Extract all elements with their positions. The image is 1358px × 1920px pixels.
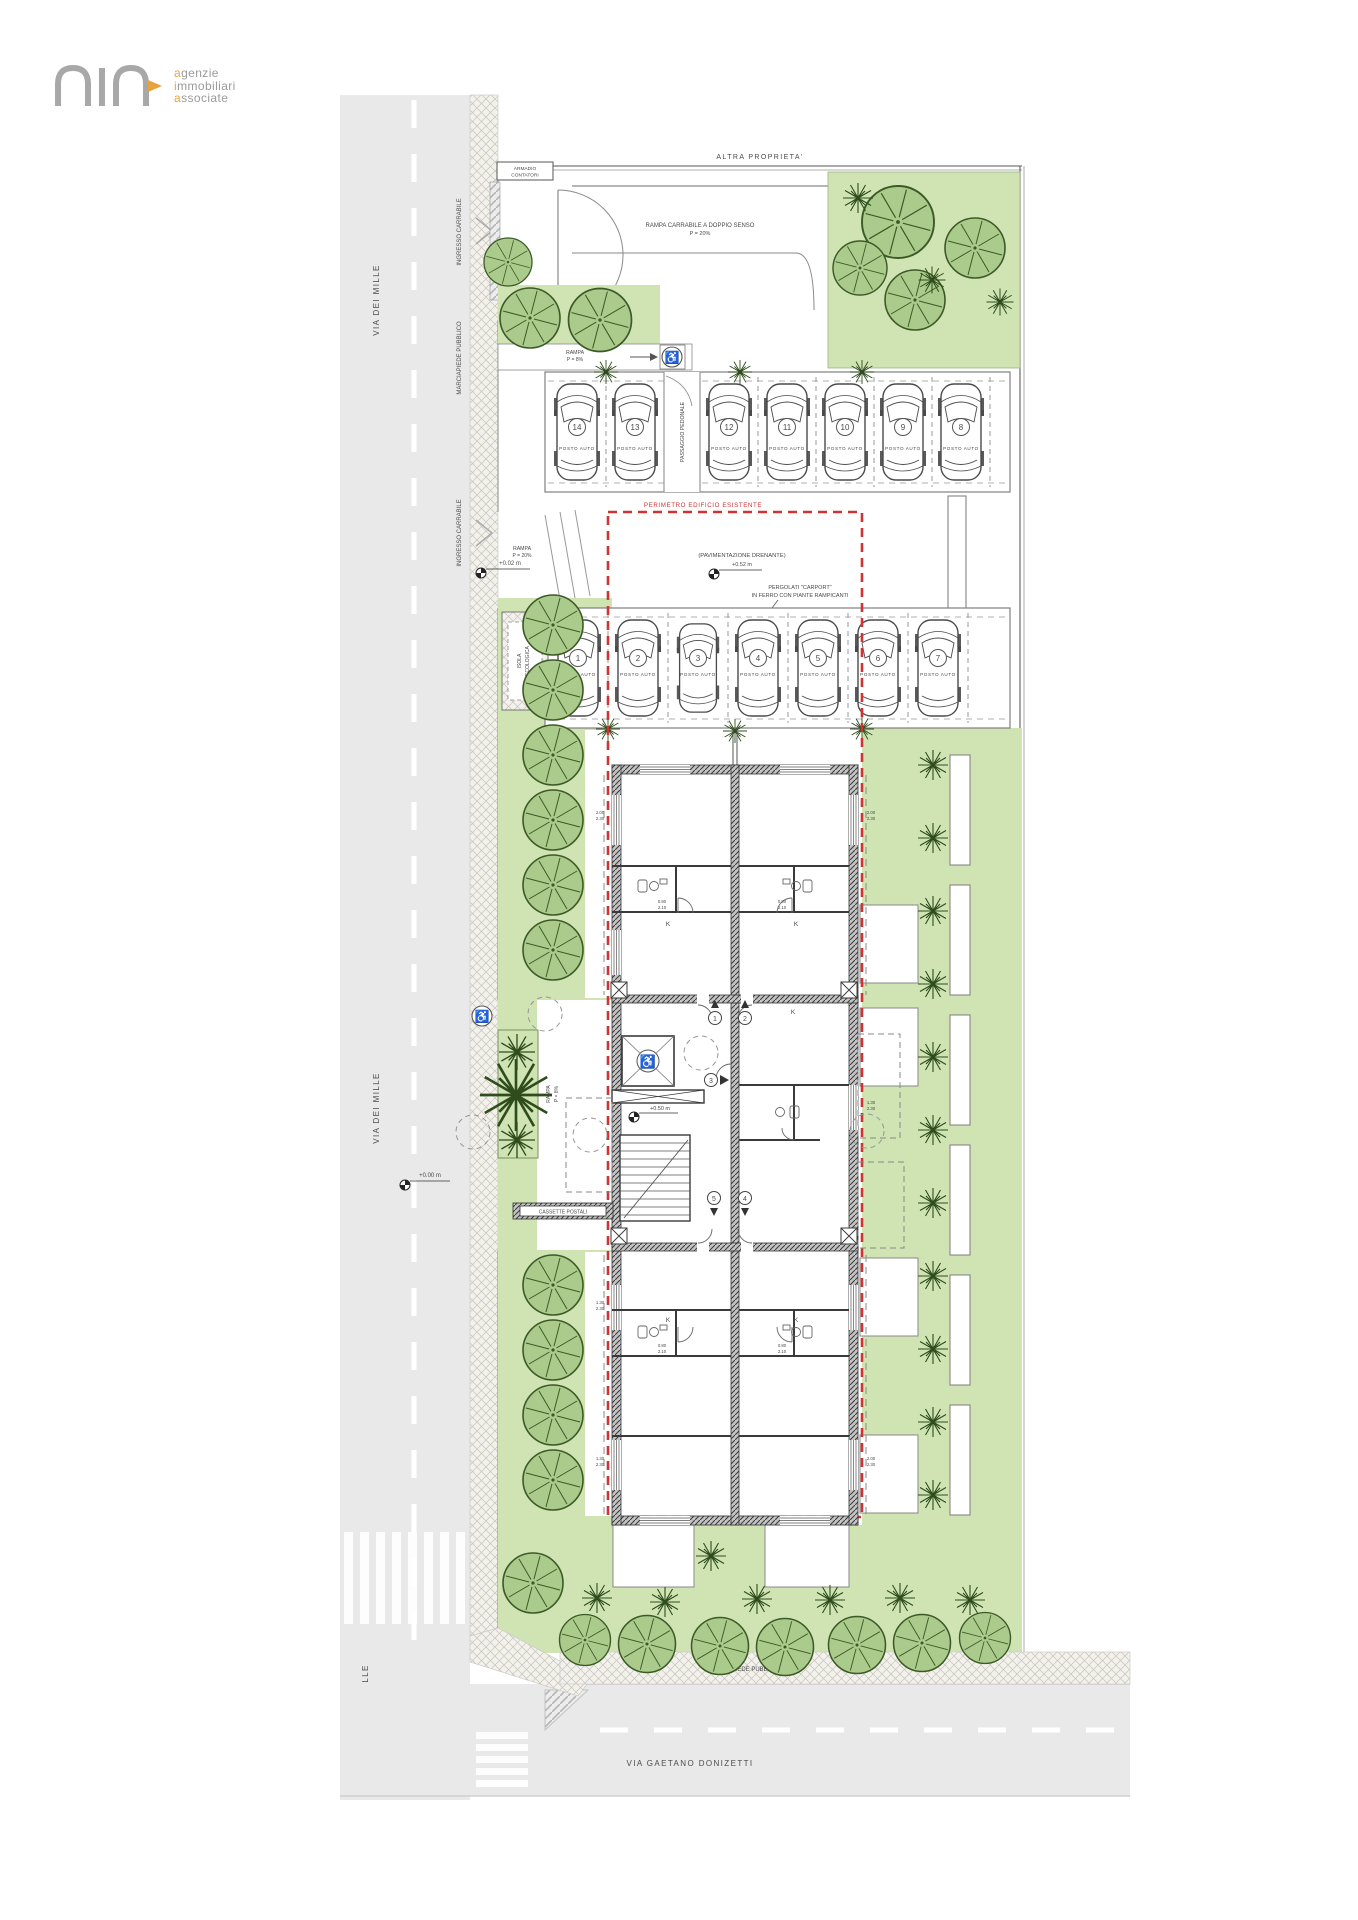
tree-icon	[945, 218, 1005, 278]
tree-icon	[523, 920, 583, 980]
ped-ramp-label-2: P = 8%	[567, 357, 584, 363]
level-marker-entrance: +0.50 m	[629, 1106, 678, 1122]
tree-icon	[523, 1450, 583, 1510]
svg-text:1.30: 1.30	[596, 1456, 605, 1461]
svg-text:2.30: 2.30	[596, 816, 605, 821]
parking-spot-lower-7: 7 POSTO AUTO	[915, 620, 961, 716]
spot-label: POSTO AUTO	[680, 672, 716, 677]
svg-text:1.30: 1.30	[867, 1100, 876, 1105]
spot-number: 4	[756, 654, 761, 663]
paving-note: (PAVIMENTAZIONE DRENANTE)	[698, 553, 785, 559]
spot-label: POSTO AUTO	[943, 446, 979, 451]
street-bottom-label: VIA GAETANO DONIZETTI	[626, 1759, 753, 1768]
car-icon	[615, 620, 661, 716]
tree-icon	[523, 790, 583, 850]
svg-text:2.30: 2.30	[867, 1462, 876, 1467]
svg-text:2.30: 2.30	[596, 1306, 605, 1311]
tree-icon	[523, 725, 583, 785]
sidewalk-label-ingresso-1: INGRESSO CARRABILE	[457, 198, 463, 265]
mailboxes-label: CASSETTE POSTALI	[539, 1210, 588, 1216]
level-street-value: +0.00 m	[419, 1173, 441, 1179]
second-car-ramp: RAMPA P = 20%	[513, 510, 590, 600]
svg-text:1.30: 1.30	[596, 1300, 605, 1305]
svg-text:2.30: 2.30	[596, 1462, 605, 1467]
spot-number: 2	[636, 654, 641, 663]
svg-text:2.30: 2.30	[867, 1106, 876, 1111]
spot-number: 5	[816, 654, 821, 663]
spot-label: POSTO AUTO	[860, 672, 896, 677]
kitchen-label: K	[794, 1317, 799, 1324]
spot-label: POSTO AUTO	[920, 672, 956, 677]
street-left-label-1: VIA DEI MILLE	[372, 264, 381, 336]
entrance-number: 1	[713, 1016, 717, 1023]
eco-island-label-1: ISOLA	[517, 653, 523, 668]
svg-text:0.80: 0.80	[778, 1343, 787, 1348]
spot-label: POSTO AUTO	[740, 672, 776, 677]
spot-number: 8	[959, 423, 964, 432]
kitchen-label: K	[794, 921, 799, 928]
tree-icon	[560, 1615, 611, 1666]
pergola-note-1: PERGOLATI "CARPORT"	[768, 585, 831, 591]
tree-icon	[523, 660, 583, 720]
tree-icon	[833, 241, 887, 295]
level-marker-court: +0.52 m	[709, 562, 762, 579]
sidewalk-label-ingresso-2: INGRESSO CARRABILE	[457, 499, 463, 566]
parking-spot-upper-8: 8 POSTO AUTO	[938, 384, 984, 480]
svg-text:2.10: 2.10	[658, 1349, 667, 1354]
mailboxes: CASSETTE POSTALI	[513, 1203, 613, 1219]
elevator: ♿	[622, 1036, 674, 1086]
ramp2-label-1: RAMPA	[513, 546, 532, 552]
spot-label: POSTO AUTO	[769, 446, 805, 451]
pedestrian-passage: PASSAGGIO PEDONALE	[664, 372, 700, 492]
spot-number: 10	[841, 423, 850, 432]
tree-icon	[500, 288, 560, 348]
entrance-number: 5	[712, 1196, 716, 1203]
tree-icon	[484, 238, 532, 286]
parking-spot-lower-4: 4 POSTO AUTO	[735, 620, 781, 716]
svg-text:0.80: 0.80	[658, 1343, 667, 1348]
svg-text:2.00: 2.00	[596, 810, 605, 815]
kitchen-label: K	[666, 921, 671, 928]
spot-number: 9	[901, 423, 906, 432]
entrance-number: 4	[743, 1196, 747, 1203]
parking-spot-upper-11: 11 POSTO AUTO	[764, 384, 810, 480]
building: ♿ +0.50 m	[566, 728, 904, 1525]
entry-ramp-label-2: P = 8%	[554, 1085, 560, 1102]
svg-text:2.00: 2.00	[867, 810, 876, 815]
site-plan-svg: VIA DEI MILLE VIA DEI MILLE VIA DEI MILL…	[0, 0, 1358, 1920]
meter-cabinet-label-1: ARMADIO	[514, 166, 537, 172]
tree-icon	[523, 595, 583, 655]
car-icon	[795, 620, 841, 716]
tree-icon	[692, 1618, 749, 1675]
svg-text:0.80: 0.80	[778, 899, 787, 904]
entry-ramp-label-1: RAMPA	[546, 1085, 552, 1103]
logo-monogram-icon	[52, 62, 164, 110]
svg-text:2.10: 2.10	[778, 1349, 787, 1354]
spot-label: POSTO AUTO	[559, 446, 595, 451]
red-perimeter-label: PERIMETRO EDIFICIO ESISTENTE	[644, 502, 762, 509]
logo-text: agenzie immobiliari associate	[174, 67, 236, 106]
spot-label: POSTO AUTO	[711, 446, 747, 451]
svg-text:2.00: 2.00	[867, 1456, 876, 1461]
blueprint-page: agenzie immobiliari associate	[0, 0, 1358, 1920]
level-sidewalk-value: +0.02 m	[499, 561, 521, 567]
parking-spot-lower-2: 2 POSTO AUTO	[615, 620, 661, 716]
spot-label: POSTO AUTO	[800, 672, 836, 677]
tree-icon	[894, 1615, 951, 1672]
car-icon	[915, 620, 961, 716]
tree-icon	[960, 1613, 1011, 1664]
spot-number: 13	[631, 423, 640, 432]
parking-spot-lower-5: 5 POSTO AUTO	[795, 620, 841, 716]
tree-icon	[619, 1616, 676, 1673]
spot-label: POSTO AUTO	[617, 446, 653, 451]
parking-spot-upper-13: 13 POSTO AUTO	[612, 384, 658, 480]
kitchen-label: K	[666, 1317, 671, 1324]
wheelchair-icon: ♿	[640, 1054, 656, 1069]
entrance-5: 5	[708, 1192, 721, 1217]
tree-icon	[885, 270, 945, 330]
car-icon	[735, 620, 781, 716]
car-icon	[677, 624, 719, 712]
ramp-slope-label: P = 20%	[690, 231, 711, 237]
spot-number: 11	[783, 423, 792, 432]
street-left-label-2: VIA DEI MILLE	[372, 1072, 381, 1144]
meter-cabinet-label-2: CONTATORI	[511, 173, 538, 179]
kitchen-label: K	[791, 1009, 796, 1016]
entrance-number: 2	[743, 1016, 747, 1023]
street-via-dei-mille: VIA DEI MILLE VIA DEI MILLE VIA DEI MILL…	[340, 95, 470, 1800]
svg-text:2.10: 2.10	[658, 905, 667, 910]
logo-line: associate	[174, 92, 236, 105]
spot-number: 12	[725, 423, 734, 432]
tree-icon	[503, 1553, 563, 1613]
entrance-4: 4	[739, 1192, 752, 1217]
tree-icon	[523, 1320, 583, 1380]
entrance-number: 3	[709, 1078, 713, 1085]
spot-number: 6	[876, 654, 881, 663]
ped-ramp-label-1: RAMPA	[566, 350, 585, 356]
spot-label: POSTO AUTO	[827, 446, 863, 451]
level-court-value: +0.52 m	[732, 562, 752, 568]
svg-text:2.10: 2.10	[778, 905, 787, 910]
agency-logo: agenzie immobiliari associate	[52, 62, 236, 110]
tree-icon	[829, 1617, 886, 1674]
spot-number: 1	[576, 654, 581, 663]
staircase	[620, 1135, 690, 1221]
parking-spot-upper-12: 12 POSTO AUTO	[706, 384, 752, 480]
pergola-note-2: IN FERRO CON PIANTE RAMPICANTI	[752, 593, 849, 599]
street-via-gaetano-donizetti: VIA GAETANO DONIZETTI	[340, 1684, 1130, 1796]
braced-wall	[612, 1090, 704, 1103]
ramp2-label-2: P = 20%	[513, 553, 533, 559]
parking-row-lower: 1 POSTO AUTO 2 POSTO AUTO 3 POSTO AUTO 4…	[545, 608, 1010, 743]
tree-icon	[523, 855, 583, 915]
spot-label: POSTO AUTO	[885, 446, 921, 451]
spot-number: 7	[936, 654, 941, 663]
sidewalk-label-marciapiede: MARCIAPIEDE PUBBLICO	[457, 321, 463, 395]
parking-row-upper: 14 POSTO AUTO 13 POSTO AUTO PASSAGGIO PE…	[545, 360, 1010, 492]
planned-tree-icon	[684, 1036, 718, 1070]
parking-spot-upper-9: 9 POSTO AUTO	[880, 384, 926, 480]
boundary-top-label: ALTRA PROPRIETA'	[716, 154, 803, 161]
passage-label: PASSAGGIO PEDONALE	[680, 401, 686, 462]
wheelchair-icon: ♿	[665, 351, 680, 365]
ramp-label: RAMPA CARRABILE A DOPPIO SENSO	[646, 223, 755, 229]
accessibility-sign: ♿	[472, 1006, 492, 1026]
parking-spot-lower-3: 3 POSTO AUTO	[677, 624, 719, 712]
wheelchair-icon: ♿	[475, 1010, 490, 1024]
parking-spot-upper-10: 10 POSTO AUTO	[822, 384, 868, 480]
spot-number: 14	[573, 423, 582, 432]
tree-icon	[569, 289, 632, 352]
level-entrance-value: +0.50 m	[650, 1106, 670, 1112]
tree-icon	[523, 1255, 583, 1315]
spot-number: 3	[696, 654, 701, 663]
tree-icon	[757, 1619, 814, 1676]
svg-text:2.30: 2.30	[867, 816, 876, 821]
tree-icon	[523, 1385, 583, 1445]
parking-spot-upper-14: 14 POSTO AUTO	[554, 384, 600, 480]
boundary-top: ALTRA PROPRIETA'	[498, 154, 1022, 170]
svg-text:0.80: 0.80	[658, 899, 667, 904]
spot-label: POSTO AUTO	[620, 672, 656, 677]
court-planter	[948, 496, 966, 608]
